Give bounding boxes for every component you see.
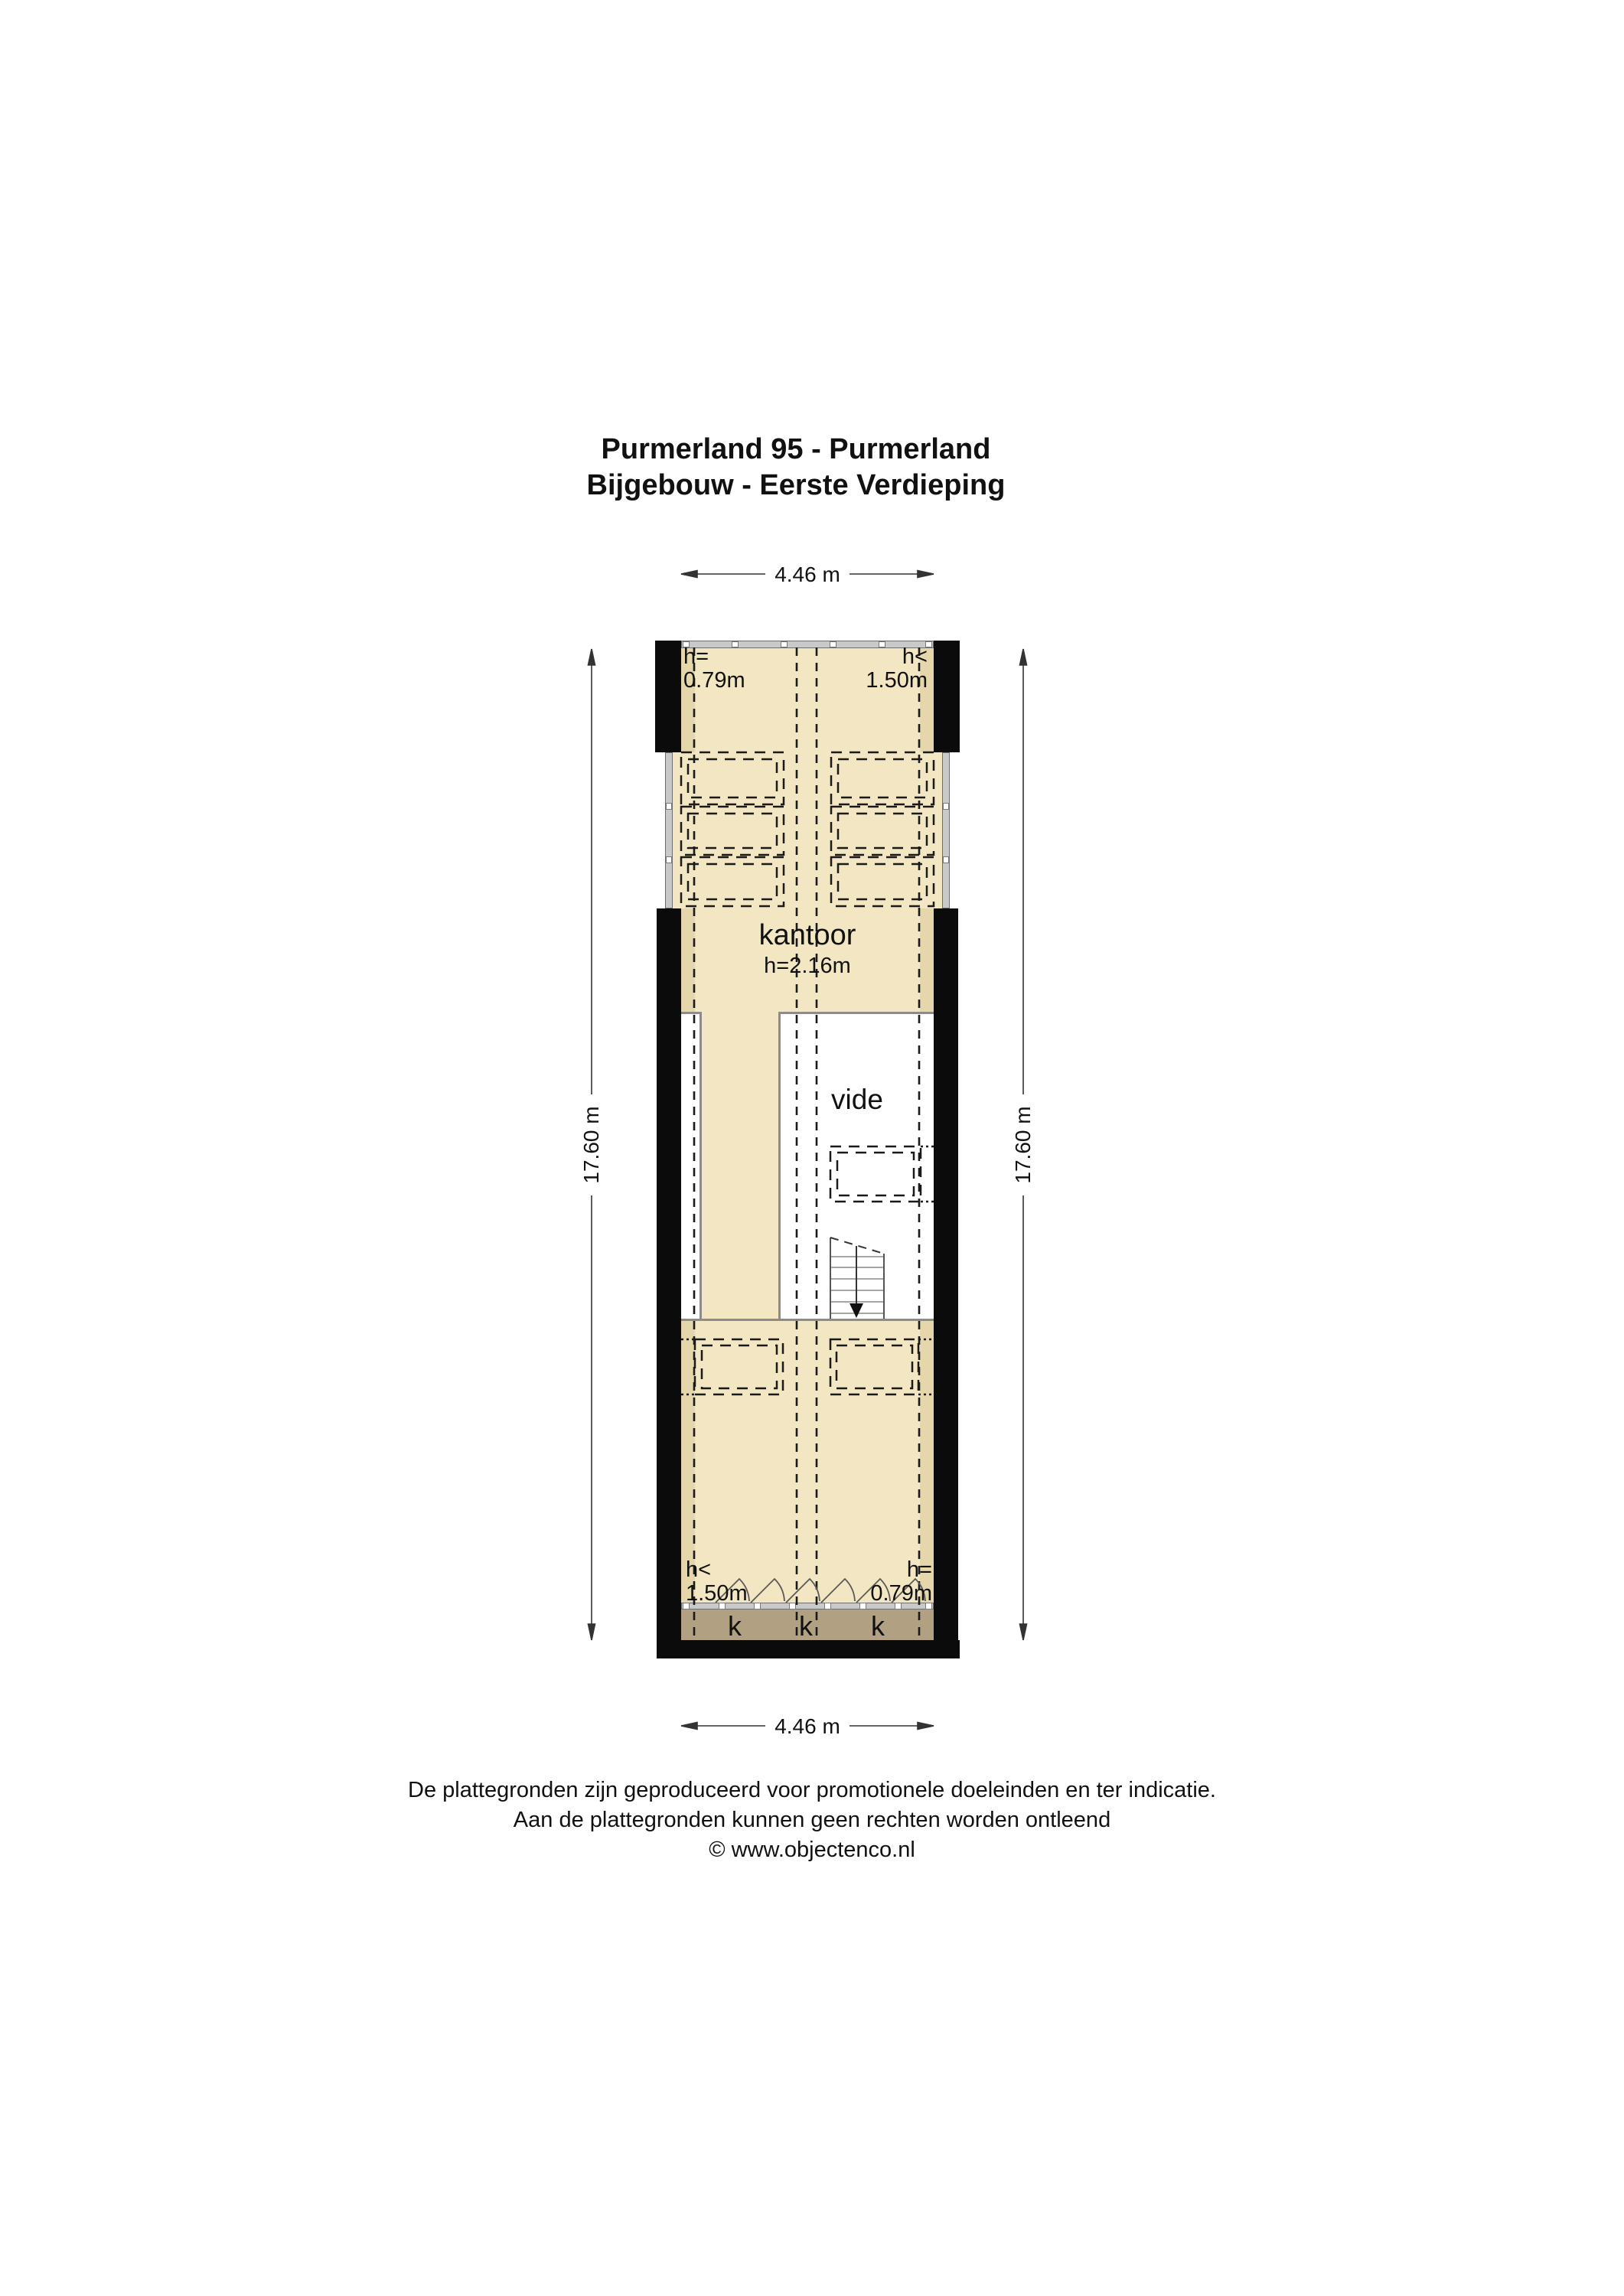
dimension-height-left: 17.60 m xyxy=(579,1106,604,1183)
dimension-lines xyxy=(589,571,1027,1730)
height-annotation-bottom-left: h< 1.50m xyxy=(686,1558,748,1606)
disclaimer-line2: Aan de plattegronden kunnen geen rechten… xyxy=(0,1805,1624,1835)
closet-label: k xyxy=(799,1610,813,1642)
height-annotation-top-left: h= 0.79m xyxy=(683,645,745,693)
dimension-width-top: 4.46 m xyxy=(681,563,934,587)
room-height-kantoor: h=2.16m xyxy=(681,954,934,979)
room-label-vide: vide xyxy=(781,1084,934,1116)
vide-roof-window xyxy=(830,1146,921,1202)
height-annotation-bottom-right: h= 0.79m xyxy=(870,1558,932,1606)
lower-roof-windows xyxy=(695,1339,918,1394)
room-label-kantoor: kantoor xyxy=(681,919,934,952)
closet-label: k xyxy=(728,1610,742,1642)
disclaimer-line3: © www.objectenco.nl xyxy=(0,1835,1624,1865)
dimension-width-bottom: 4.46 m xyxy=(681,1714,934,1739)
stairs xyxy=(830,1238,884,1319)
roof-window-outlines xyxy=(681,752,934,906)
plan-linework xyxy=(0,0,1624,2296)
closet-label: k xyxy=(871,1610,885,1642)
floorplan-sheet: Purmerland 95 - Purmerland Bijgebouw - E… xyxy=(0,0,1624,2296)
height-annotation-top-right: h< 1.50m xyxy=(866,645,928,693)
dimension-height-right: 17.60 m xyxy=(1011,1106,1035,1183)
disclaimer-line1: De plattegronden zijn geproduceerd voor … xyxy=(0,1776,1624,1805)
disclaimer: De plattegronden zijn geproduceerd voor … xyxy=(0,1776,1624,1865)
